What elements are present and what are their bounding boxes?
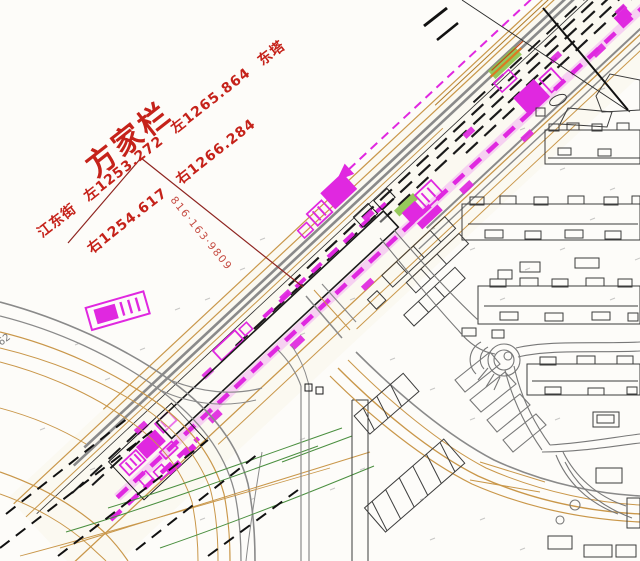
main-road-corridor [0, 0, 640, 561]
garden-parcels [455, 352, 546, 452]
east-tower-label: 东塔 [254, 37, 288, 69]
chainage-line-left: 江东街 左1253.272 左1265.864 东塔 [34, 37, 288, 241]
hatched-building-b [354, 373, 419, 434]
site-plan-svg: 816·163·9809 方家栏 江东街 左1253.272 左1265.864… [0, 0, 640, 561]
mid-small-buildings [498, 258, 599, 279]
apartment-row-c [527, 356, 640, 395]
west-entrance-structure [86, 291, 150, 330]
site-plan-drawing: 816·163·9809 方家栏 江东街 左1253.272 左1265.864… [0, 0, 640, 561]
hatched-building-a [365, 439, 465, 532]
street-name: 江东街 [34, 200, 80, 241]
spiral-plaza [470, 342, 520, 390]
apartment-row-b [462, 278, 640, 338]
